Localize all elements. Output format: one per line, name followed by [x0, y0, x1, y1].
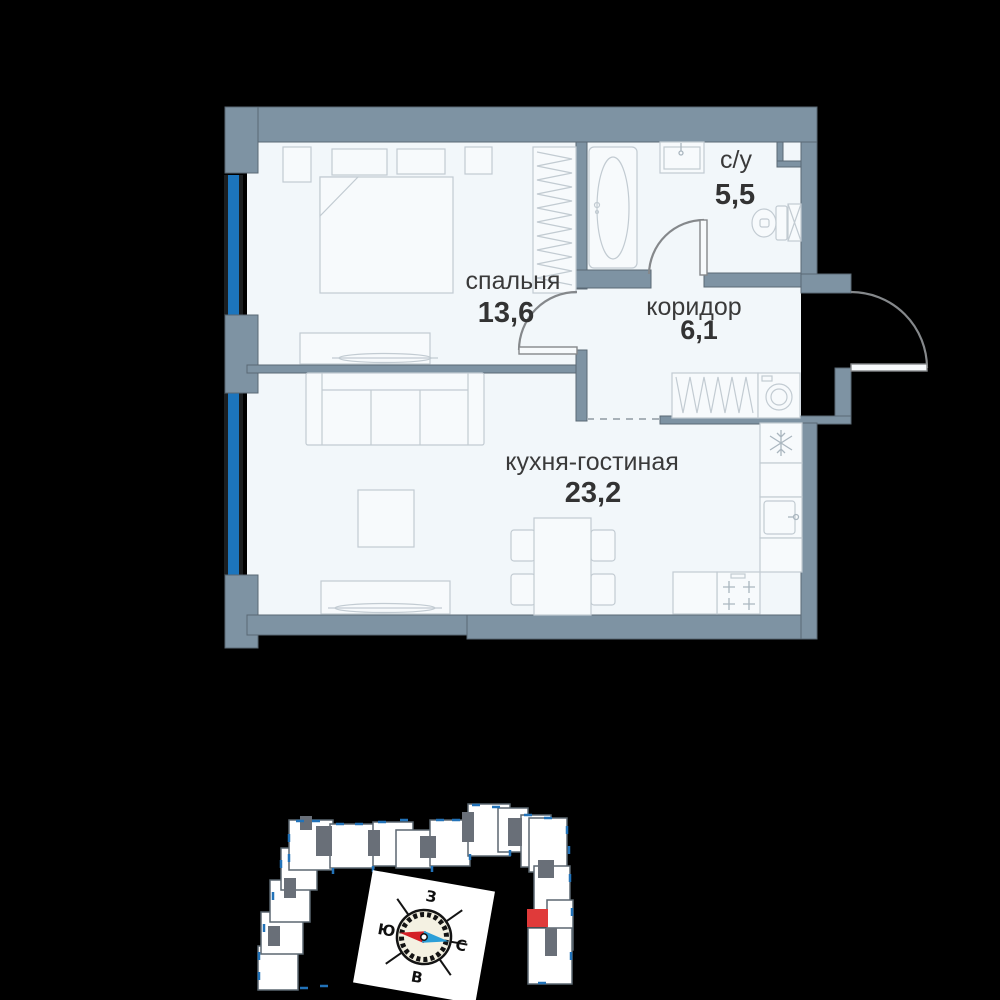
compass-pivot — [420, 933, 427, 940]
bathroom-area: 5,5 — [715, 179, 755, 211]
kitchen-living-area: 23,2 — [565, 477, 621, 509]
kitchen-counter-corner — [673, 572, 717, 614]
bathtub — [589, 147, 637, 268]
site-plan: З Ю С В — [258, 804, 573, 1000]
window-bedroom — [224, 175, 243, 315]
bed — [320, 149, 453, 293]
corridor-area: 6,1 — [680, 315, 718, 345]
floor-plan-canvas: спальня 13,6 — [0, 0, 1000, 1000]
chair — [511, 530, 535, 561]
chair — [591, 574, 615, 605]
washing-machine — [758, 373, 800, 418]
coffee-table — [358, 490, 414, 547]
bedroom-label: спальня — [466, 267, 561, 295]
chair — [591, 530, 615, 561]
kitchen-living-label: кухня-гостиная — [505, 448, 679, 476]
apartment-location-marker — [527, 909, 548, 927]
bathroom-label: с/у — [720, 146, 752, 174]
sink — [660, 142, 704, 173]
bedroom-area: 13,6 — [478, 297, 534, 329]
sofa — [306, 373, 484, 445]
wardrobe-corridor — [672, 373, 758, 418]
compass-rose: З Ю С В — [353, 870, 495, 1000]
shaft-box — [788, 204, 801, 241]
stove — [717, 572, 760, 614]
window-living-room — [224, 393, 243, 575]
nightstand-left — [283, 147, 311, 182]
chair — [511, 574, 535, 605]
nightstand-right — [465, 147, 492, 174]
dresser-bedroom — [300, 333, 438, 364]
kitchen-cabinet — [760, 463, 802, 497]
kitchen-sink — [760, 497, 802, 538]
floor-plan: спальня 13,6 — [224, 107, 927, 648]
tv-stand — [321, 581, 450, 614]
compass-label-south: Ю — [376, 920, 396, 941]
apartment-plan-page: спальня 13,6 — [0, 0, 1000, 1000]
toilet — [752, 206, 787, 240]
kitchen-counter — [760, 538, 802, 572]
entrance-door — [851, 292, 927, 371]
dining-table — [534, 518, 591, 615]
fridge — [760, 423, 802, 463]
